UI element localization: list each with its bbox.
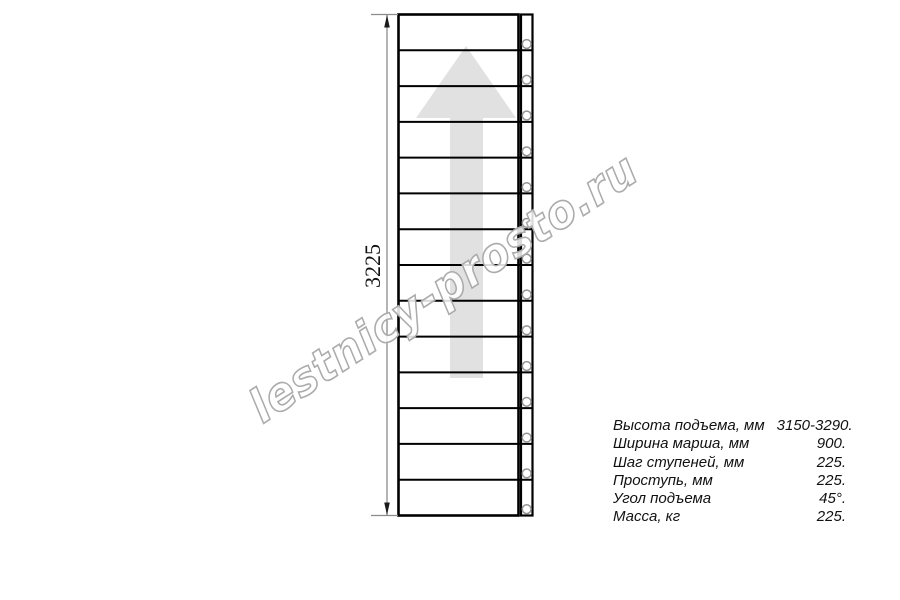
watermark-text: lestnicy-prosto.ru: [239, 142, 647, 433]
bolt-circle: [522, 111, 531, 120]
bolt-circle: [522, 469, 531, 478]
spec-value: 225.: [817, 472, 846, 490]
dimension-3225: 3225: [360, 15, 398, 516]
spec-label: Шаг ступеней, мм: [613, 454, 744, 472]
bolt-circle: [522, 397, 531, 406]
bolt-circle: [522, 75, 531, 84]
spec-value: 45°.: [819, 490, 846, 508]
bolt-circle: [522, 183, 531, 192]
spec-row-width: Ширина марша, мм 900.: [613, 435, 846, 453]
spec-row-mass: Масса, кг 225.: [613, 508, 846, 526]
dimension-arrowhead-down-icon: [384, 503, 390, 516]
dimension-arrowhead-up-icon: [384, 15, 390, 28]
spec-row-tread: Проступь, мм 225.: [613, 472, 846, 490]
climb-direction-arrow-icon: [416, 46, 516, 378]
spec-value: 225.: [817, 454, 846, 472]
bolt-circle: [522, 40, 531, 49]
bolt-circle: [522, 362, 531, 371]
specs-table: Высота подъема, мм 3150-3290. Ширина мар…: [613, 417, 846, 527]
spec-value: 3150-3290.: [777, 417, 853, 435]
spec-row-step-pitch: Шаг ступеней, мм 225.: [613, 454, 846, 472]
bolt-circle: [522, 147, 531, 156]
bolt-circle: [522, 290, 531, 299]
spec-value: 900.: [817, 435, 846, 453]
spec-label: Угол подъема: [613, 490, 711, 508]
spec-value: 225.: [817, 508, 846, 526]
spec-label: Ширина марша, мм: [613, 435, 749, 453]
spec-label: Проступь, мм: [613, 472, 713, 490]
spec-row-height: Высота подъема, мм 3150-3290.: [613, 417, 846, 435]
spec-row-angle: Угол подъема 45°.: [613, 490, 846, 508]
bolt-circle: [522, 433, 531, 442]
dimension-value-label: 3225: [360, 244, 385, 288]
bolt-circle: [522, 326, 531, 335]
spec-label: Высота подъема, мм: [613, 417, 765, 435]
bolt-circles-group: [522, 40, 531, 514]
bolt-circle: [522, 505, 531, 514]
spec-label: Масса, кг: [613, 508, 680, 526]
page: 3225 lestnicy-prosto.ru Высота подъема, …: [0, 0, 900, 600]
